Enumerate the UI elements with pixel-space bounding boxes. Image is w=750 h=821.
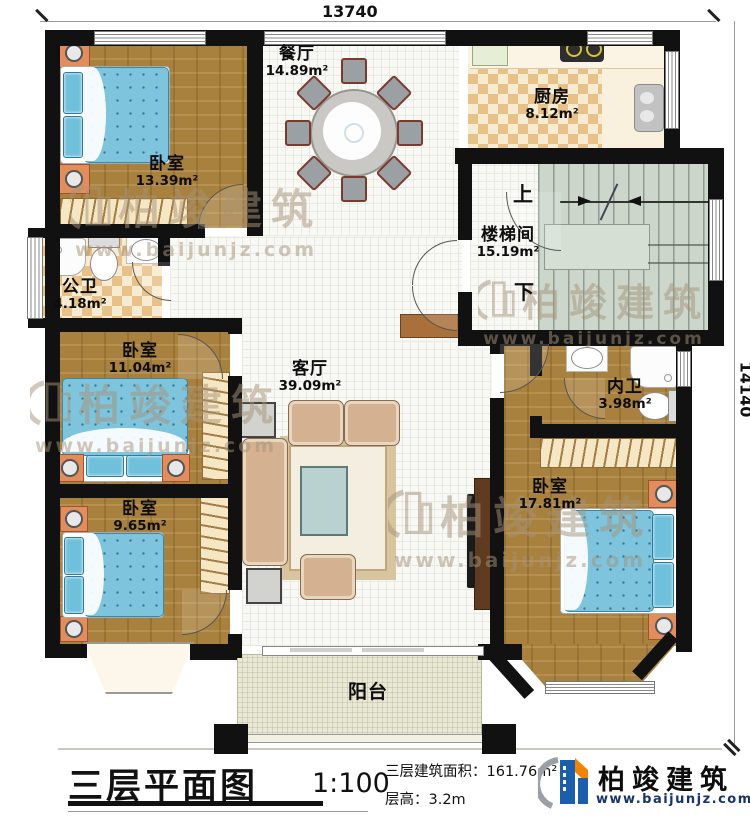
bathroom-sink [131,239,161,261]
pillow [126,455,164,477]
pillow [652,562,674,608]
balcony-post [482,724,516,754]
window [28,238,42,318]
dining-chair [341,58,367,84]
wall [45,224,205,238]
stair-direction-up: 上 [513,178,533,207]
nightstand [56,454,84,482]
stair-rail-line [648,262,708,264]
sink-basin [640,92,654,104]
side-table [240,402,276,438]
window [710,200,722,280]
room-label-bedroom-3: 卧室 17.81m² [519,478,582,512]
nightstand [162,454,190,482]
wall [45,30,60,658]
room-label-bedroom-1: 卧室 13.39m² [136,155,199,189]
wall [490,398,504,656]
balcony-railing [237,734,482,743]
dimension-line-top [40,21,716,22]
dimension-tick [35,9,48,22]
wall [530,424,692,438]
room-label-dining: 餐厅 14.89m² [266,45,329,79]
wall [228,498,242,590]
dimension-right-value: 14140 [736,358,750,422]
tv [467,494,475,588]
wall [455,148,724,164]
wall [45,484,242,498]
wall [228,318,242,334]
dining-chair [397,120,423,146]
wall [45,644,87,658]
wall [676,346,692,652]
nightstand [60,616,88,642]
wall [28,318,45,328]
kitchen-sink [634,84,664,132]
wall [158,224,170,266]
room-label-kitchen: 厨房 8.12m² [525,88,578,122]
wall [458,292,472,346]
sink-basin [640,110,654,122]
room-label-bedroom-4: 卧室 9.65m² [113,500,166,534]
stair-arrow-head [628,196,641,206]
pillow [64,537,84,575]
armchair [344,400,400,446]
nightstand [60,506,88,532]
bay-window [546,682,654,693]
sofa [242,438,288,566]
brand-logo-icon [538,752,592,812]
room-label-living: 客厅 39.09m² [279,360,342,394]
brand-url: www.baijunjz.com [596,792,750,807]
window [265,32,445,44]
room-label-balcony: 阳台 [348,682,388,703]
building-area-text: 三层建筑面积：161.76m² [385,760,557,781]
bathroom-sink [571,347,603,369]
window [588,32,652,44]
stair-rail-line [648,244,708,246]
room-label-inner-bathroom: 内卫 3.98m² [598,378,651,412]
title-underline-thin [68,811,368,812]
stair-direction-down: 下 [514,276,534,305]
balcony-post [214,724,248,754]
dimension-line-right [734,21,735,747]
stair-arrow-head [578,196,591,206]
dining-table-center [344,123,364,143]
title-underline [68,801,323,806]
armchair [288,400,344,446]
armchair [300,554,356,600]
floor-height-text: 层高：3.2m [385,788,466,809]
room-label-bedroom-2: 卧室 11.04m² [109,342,172,376]
bay-window [84,642,194,694]
pillow [86,455,124,477]
room-label-stairwell: 楼梯间 15.19m² [477,226,540,260]
side-table [246,568,282,604]
wall [228,376,242,484]
dining-chair [341,176,367,202]
pillow [64,576,84,614]
shower-drain [664,374,672,382]
dimension-tick [707,9,720,22]
dining-chair [285,120,311,146]
wardrobe [202,372,230,480]
nightstand [58,164,90,194]
wall [247,30,263,236]
dimension-top-value: 13740 [318,2,382,21]
pillow [63,116,83,158]
wall [28,228,45,238]
terrace-edge-line [58,748,722,750]
sliding-door-panel [362,648,424,652]
window [666,52,678,128]
toilet [90,247,118,281]
sliding-door-panel [290,648,352,652]
wall [458,162,472,240]
room-label-public-bathroom: 公卫 4.18m² [53,278,106,312]
plan-scale: 1:100 [312,768,390,799]
coffee-table [300,466,348,536]
wardrobe [200,494,230,594]
window [95,32,205,44]
wall [190,644,237,660]
pillow [63,72,83,114]
pillow [652,514,674,560]
floor-plan-canvas: 13740 14140 [0,0,750,821]
wall [45,318,242,332]
window [678,352,690,386]
wardrobe [540,438,680,468]
